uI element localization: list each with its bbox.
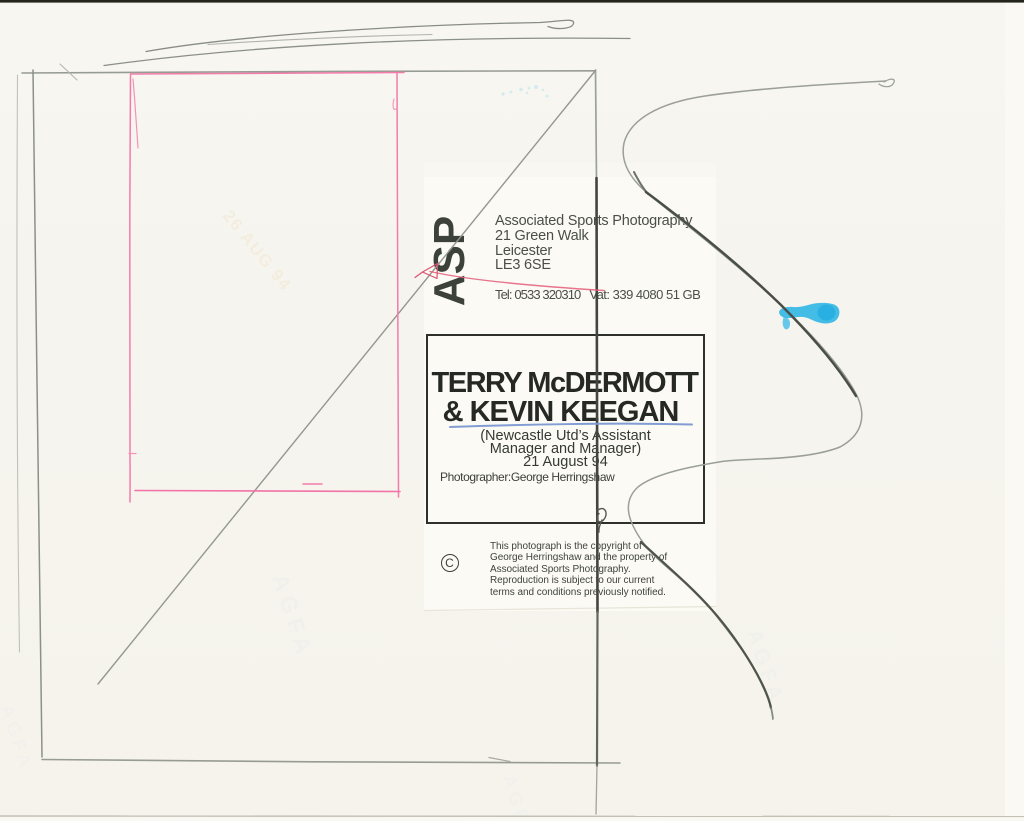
svg-text:AGF: AGF [497, 772, 533, 821]
svg-text:AGFA: AGFA [267, 571, 319, 663]
svg-text:26 AUG 94: 26 AUG 94 [219, 207, 295, 295]
svg-text:AGFA: AGFA [0, 702, 36, 774]
svg-text:AGFA: AGFA [742, 626, 788, 708]
